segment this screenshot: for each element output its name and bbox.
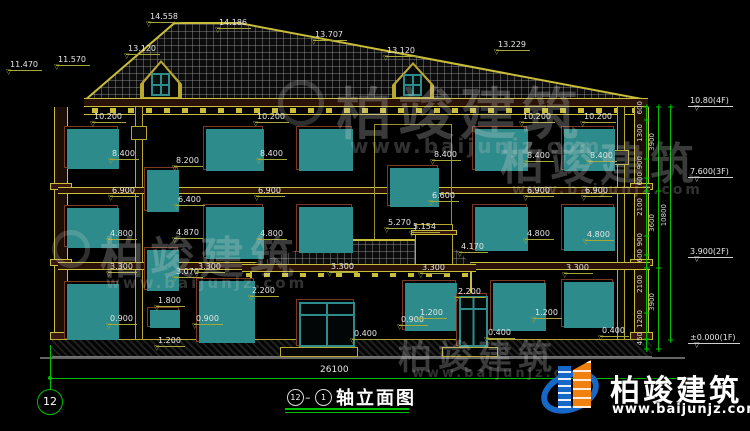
elevation-marker: 3.900(2F) bbox=[688, 247, 733, 258]
window bbox=[561, 279, 613, 327]
chain-value: 2100 bbox=[637, 275, 644, 293]
dimension-label: 0.900 bbox=[108, 314, 137, 325]
chain-value: 3900 bbox=[649, 293, 656, 311]
chain-tick: + bbox=[643, 266, 651, 272]
chain-value: 450 bbox=[637, 332, 644, 345]
chain-tick: + bbox=[667, 338, 675, 344]
dimension-label: 0.400 bbox=[600, 326, 629, 337]
dimension-label: 1.200 bbox=[156, 336, 185, 347]
watermark-url-midleft: www.baijunjz.com bbox=[106, 274, 307, 292]
axis-leader-vertical bbox=[50, 345, 51, 390]
chain-value: 10800 bbox=[661, 204, 668, 226]
title-axis-start-bubble: 12 bbox=[287, 389, 304, 406]
dimension-label: 8.200 bbox=[174, 156, 203, 167]
brand-logo-tower-orange bbox=[573, 360, 591, 408]
chain-tick: + bbox=[643, 105, 651, 111]
chain-tick: + bbox=[643, 253, 651, 259]
dimension-label: 0.900 bbox=[194, 314, 223, 325]
brand-logo bbox=[540, 358, 606, 422]
chain-tick: + bbox=[643, 234, 651, 240]
window-frame bbox=[564, 282, 614, 328]
dimension-label: 6.900 bbox=[110, 186, 139, 197]
downspout-left-collector bbox=[131, 126, 147, 140]
dimension-label: 4.800 bbox=[585, 230, 614, 241]
dimension-label: 8.400 bbox=[258, 149, 287, 160]
dimension-label: 8.400 bbox=[110, 149, 139, 160]
dimension-label: 6.600 bbox=[430, 191, 459, 202]
dimension-label: 10.200 bbox=[92, 112, 126, 123]
chain-tick: + bbox=[643, 347, 651, 353]
dimension-label: 0.400 bbox=[352, 329, 381, 340]
dimension-label: 1.200 bbox=[418, 308, 447, 319]
chain-value: 3600 bbox=[649, 214, 656, 232]
dimension-label: 3.300 bbox=[329, 262, 358, 273]
dimension-label: 4.800 bbox=[525, 229, 554, 240]
chain-tick: + bbox=[655, 105, 663, 111]
axis-node-dot bbox=[48, 376, 52, 380]
title-underline-2 bbox=[285, 412, 409, 413]
chain-tick: + bbox=[655, 266, 663, 272]
window-frame bbox=[564, 207, 615, 251]
window bbox=[203, 126, 263, 170]
chain-value: 600 bbox=[637, 249, 644, 262]
chain-value: 900 bbox=[637, 233, 644, 246]
chain-tick: + bbox=[667, 105, 675, 111]
chain-tick: + bbox=[643, 337, 651, 343]
dimension-label: 3.300 bbox=[420, 263, 449, 274]
window bbox=[147, 307, 179, 327]
chain-tick: + bbox=[643, 311, 651, 317]
dimension-label: 3.300 bbox=[564, 263, 593, 274]
dimension-label: 11.570 bbox=[56, 55, 90, 66]
watermark-logo-top bbox=[278, 80, 324, 126]
door-leaf bbox=[299, 302, 355, 347]
axis-bubble-12: 12 bbox=[37, 389, 63, 415]
title-axis-end-bubble: 1 bbox=[315, 389, 332, 406]
dimension-label: 1.800 bbox=[156, 296, 185, 307]
chain-tick: + bbox=[643, 118, 651, 124]
dimension-label: 13.229 bbox=[496, 40, 530, 51]
dimension-label: 13.120 bbox=[126, 44, 160, 55]
dimension-label: 5.154 bbox=[411, 222, 440, 233]
dimension-label: 11.470 bbox=[8, 60, 42, 71]
window bbox=[144, 167, 178, 211]
dimension-label: 13.707 bbox=[313, 30, 347, 41]
window-frame bbox=[67, 284, 119, 340]
window-frame bbox=[493, 283, 546, 331]
window-frame bbox=[299, 207, 353, 253]
chain-value: 2100 bbox=[637, 198, 644, 216]
window bbox=[296, 204, 352, 252]
dimension-label: 6.400 bbox=[176, 195, 205, 206]
brand-logo-tower-blue bbox=[558, 366, 571, 408]
elevation-marker: ±0.000(1F) bbox=[688, 333, 740, 344]
elevation-drawing-canvas: 12 26100 12 – 1 轴立面图 柏竣建筑 www.baijunjz.c… bbox=[0, 0, 750, 431]
watermark-logo-midleft bbox=[52, 230, 90, 268]
dimension-label: 4.170 bbox=[459, 242, 488, 253]
overall-width-dimension: 26100 bbox=[320, 365, 349, 375]
brand-url: www.baijunjz.com bbox=[612, 402, 750, 417]
elevation-marker: 10.80(4F) bbox=[688, 96, 733, 107]
entry-door bbox=[296, 299, 354, 346]
dimension-label: 10.200 bbox=[582, 112, 616, 123]
dormer-left-window bbox=[151, 73, 170, 96]
dimension-label: 2.200 bbox=[456, 287, 485, 298]
drawing-title: 轴立面图 bbox=[336, 384, 416, 410]
chain-value: 600 bbox=[637, 101, 644, 114]
chain-tick: + bbox=[655, 347, 663, 353]
dimension-label: 1.200 bbox=[533, 308, 562, 319]
dimension-label: 14.186 bbox=[217, 18, 251, 29]
title-dash: – bbox=[305, 391, 311, 404]
window-frame bbox=[150, 310, 180, 328]
dimension-label: 6.900 bbox=[256, 186, 285, 197]
dimension-label: 14.558 bbox=[148, 12, 182, 23]
chain-value: 1200 bbox=[637, 310, 644, 328]
dimension-label: 13.120 bbox=[385, 46, 419, 57]
window bbox=[490, 280, 545, 330]
watermark-url-midright: www.baijunjz.com bbox=[512, 182, 703, 198]
